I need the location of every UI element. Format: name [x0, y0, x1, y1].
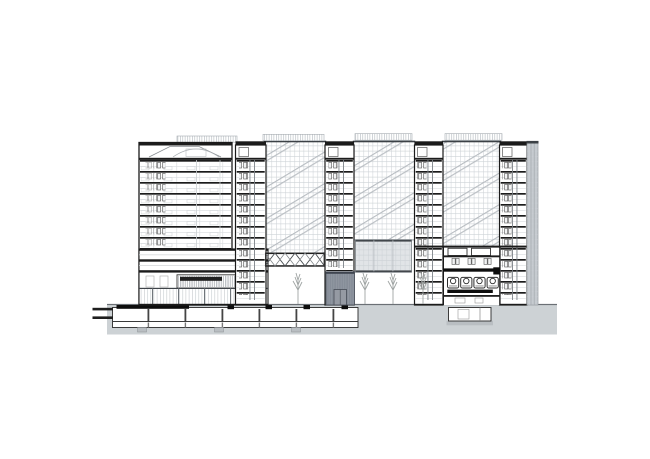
basement-right: [447, 308, 494, 326]
seat-3: [474, 277, 485, 288]
left-tower-parapet: [139, 143, 232, 146]
hall-floor-slab: [443, 295, 500, 297]
escalator-diagonals-2: [353, 141, 415, 240]
atrium-bay-3: [442, 141, 501, 247]
entrance-volume: [326, 272, 355, 305]
seat-4: [487, 277, 498, 288]
core-2-parapet: [325, 141, 354, 144]
escalator-diagonals-3: [442, 141, 501, 247]
rooftop-unit-2: [472, 248, 491, 255]
building-section-drawing: [0, 0, 650, 459]
mezzanine-louver-box: [177, 275, 237, 288]
basement-left-box: [113, 308, 359, 328]
stage-band: [447, 290, 493, 293]
core-4-parapet: [500, 141, 528, 144]
rooftop-screen-1: [177, 136, 237, 142]
seat-1: [448, 277, 459, 288]
left-tower-windows: [157, 160, 166, 249]
hall-ceiling-band: [443, 268, 500, 271]
track-line-lower: [93, 316, 114, 319]
terrace-slab: [415, 246, 528, 248]
left-tower-windows-2: [146, 160, 155, 249]
core-3-parapet: [415, 141, 444, 144]
basement-right-box: [449, 308, 492, 322]
core-1-parapet: [236, 141, 267, 144]
bridge-volume: [356, 240, 412, 272]
escalator-diagonals-1: [264, 141, 326, 253]
core-4: [500, 141, 528, 305]
architectural-section-canvas: [0, 0, 650, 459]
core-3: [415, 141, 444, 305]
track-line-upper: [93, 308, 114, 311]
seat-2: [461, 277, 472, 288]
rooftop-screen-4: [445, 134, 502, 141]
rooftop-screen-2: [263, 134, 324, 140]
hall-corner-block: [493, 267, 500, 274]
atrium-bay-1: [264, 141, 326, 253]
side-band: [527, 141, 539, 305]
top-floor-slab: [139, 158, 232, 160]
louver-dark-band: [180, 277, 222, 281]
rooftop-unit-1: [448, 248, 467, 255]
core-1: [236, 141, 267, 305]
basement-right-footing: [447, 321, 494, 326]
rooftop-screen-3: [355, 134, 412, 141]
side-band-cap: [527, 141, 539, 144]
atrium-bay-2: [353, 141, 415, 240]
